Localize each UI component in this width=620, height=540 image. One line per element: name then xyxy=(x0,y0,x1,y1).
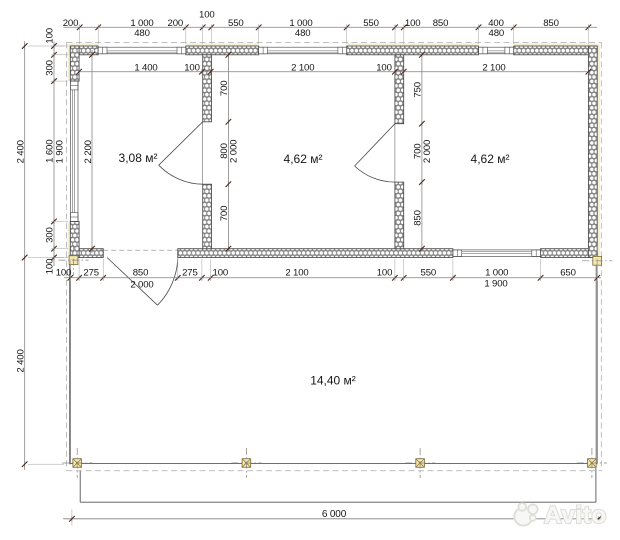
svg-text:2 200: 2 200 xyxy=(83,140,94,163)
svg-text:2 100: 2 100 xyxy=(285,268,308,279)
svg-text:100: 100 xyxy=(56,268,72,279)
svg-text:Avito: Avito xyxy=(544,502,607,529)
svg-text:100: 100 xyxy=(45,259,56,275)
svg-text:100: 100 xyxy=(199,9,215,20)
svg-text:750: 750 xyxy=(413,82,424,98)
svg-text:2 000: 2 000 xyxy=(130,280,153,291)
svg-text:100: 100 xyxy=(45,28,56,44)
svg-text:300: 300 xyxy=(45,227,56,243)
svg-text:6 000: 6 000 xyxy=(322,509,347,520)
svg-text:850: 850 xyxy=(133,268,149,279)
svg-text:480: 480 xyxy=(295,28,311,39)
svg-text:2 100: 2 100 xyxy=(482,63,505,74)
svg-text:850: 850 xyxy=(543,18,559,29)
svg-text:1 900: 1 900 xyxy=(484,278,507,289)
svg-text:2 400: 2 400 xyxy=(15,349,26,372)
svg-text:1 000: 1 000 xyxy=(485,268,508,279)
svg-text:550: 550 xyxy=(421,268,437,279)
svg-text:100: 100 xyxy=(213,268,229,279)
svg-text:100: 100 xyxy=(184,63,200,74)
svg-text:100: 100 xyxy=(376,63,392,74)
svg-text:850: 850 xyxy=(413,210,424,226)
svg-text:200: 200 xyxy=(168,18,184,29)
svg-text:480: 480 xyxy=(489,28,505,39)
svg-text:2 100: 2 100 xyxy=(291,63,314,74)
svg-text:2 400: 2 400 xyxy=(15,140,26,163)
svg-text:200: 200 xyxy=(63,18,79,29)
svg-text:2 000: 2 000 xyxy=(229,140,240,163)
svg-text:2 000: 2 000 xyxy=(422,140,433,163)
svg-text:1 900: 1 900 xyxy=(55,140,66,163)
svg-text:3,08 м²: 3,08 м² xyxy=(119,151,158,165)
svg-text:650: 650 xyxy=(560,268,576,279)
svg-text:550: 550 xyxy=(228,18,244,29)
svg-text:550: 550 xyxy=(363,18,379,29)
svg-text:14,40 м²: 14,40 м² xyxy=(310,374,356,388)
svg-text:850: 850 xyxy=(433,18,449,29)
svg-text:4,62 м²: 4,62 м² xyxy=(284,152,323,166)
svg-text:300: 300 xyxy=(45,60,56,76)
svg-text:275: 275 xyxy=(182,268,198,279)
svg-text:700: 700 xyxy=(219,81,230,97)
svg-text:700: 700 xyxy=(219,206,230,222)
svg-text:275: 275 xyxy=(83,268,99,279)
svg-text:100: 100 xyxy=(377,268,393,279)
svg-text:480: 480 xyxy=(134,28,150,39)
svg-text:1 400: 1 400 xyxy=(134,63,157,74)
svg-text:4,62 м²: 4,62 м² xyxy=(471,152,510,166)
svg-text:100: 100 xyxy=(405,18,421,29)
